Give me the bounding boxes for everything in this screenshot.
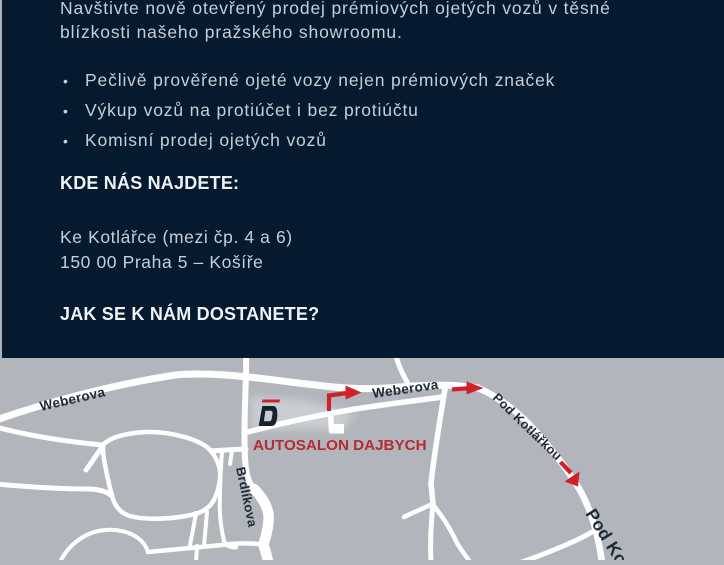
svg-text:AUTOSALON DAJBYCH: AUTOSALON DAJBYCH: [253, 437, 427, 454]
